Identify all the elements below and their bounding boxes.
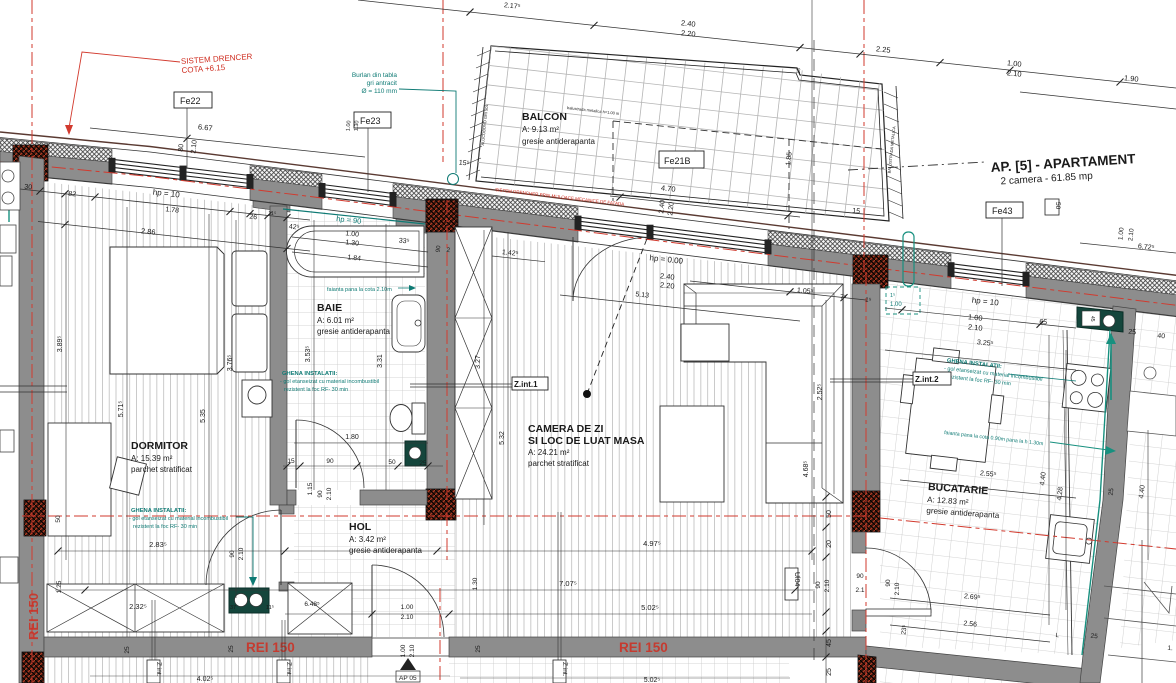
svg-text:20: 20 [826, 540, 833, 548]
svg-text:7.07⁵: 7.07⁵ [559, 579, 577, 588]
svg-text:Z.int.2: Z.int.2 [915, 375, 939, 384]
svg-text:A: 3.42 m²: A: 3.42 m² [349, 535, 386, 544]
svg-text:90: 90 [436, 245, 443, 253]
svg-text:Ul04: Ul04 [793, 572, 800, 587]
svg-text:2.10: 2.10 [894, 582, 901, 595]
svg-text:15: 15 [287, 458, 295, 465]
svg-text:Fe22: Fe22 [180, 96, 201, 106]
svg-text:2.40: 2.40 [681, 18, 696, 28]
svg-text:Fe43: Fe43 [992, 206, 1013, 216]
svg-text:2.10: 2.10 [1127, 228, 1135, 242]
svg-text:15: 15 [852, 208, 861, 216]
svg-text:3.89⁵: 3.89⁵ [57, 336, 64, 353]
svg-text:15: 15 [796, 68, 803, 74]
svg-text:parchet stratificat: parchet stratificat [528, 459, 590, 468]
svg-text:4.97⁵: 4.97⁵ [643, 539, 661, 548]
svg-text:25: 25 [1090, 633, 1098, 641]
svg-text:A: 24.21 m²: A: 24.21 m² [528, 448, 570, 457]
svg-text:Z.int.: Z.int. [285, 662, 292, 677]
svg-text:90: 90 [317, 490, 324, 498]
svg-text:gri antracit: gri antracit [367, 80, 398, 87]
svg-text:2.86: 2.86 [141, 226, 156, 236]
svg-text:HOL: HOL [349, 521, 372, 533]
svg-text:90: 90 [326, 458, 334, 465]
svg-text:A: 6.01 m²: A: 6.01 m² [317, 316, 354, 325]
svg-text:gresie antiderapanta: gresie antiderapanta [317, 327, 390, 336]
svg-text:90: 90 [885, 579, 892, 587]
svg-text:2.25: 2.25 [876, 44, 891, 54]
svg-text:45: 45 [1089, 316, 1095, 322]
svg-text:2.40: 2.40 [658, 200, 666, 214]
svg-text:Fe21B: Fe21B [664, 156, 691, 166]
svg-text:2.20: 2.20 [681, 28, 696, 38]
svg-text:90: 90 [856, 573, 864, 580]
svg-text:11⁵: 11⁵ [268, 210, 277, 218]
svg-text:BALCON: BALCON [522, 111, 567, 123]
svg-text:1.: 1. [1167, 645, 1173, 653]
svg-text:REI 150: REI 150 [26, 593, 41, 640]
svg-text:3.76⁵: 3.76⁵ [227, 355, 234, 372]
svg-text:1.85: 1.85 [785, 152, 793, 166]
svg-text:GHENA INSTALATII:: GHENA INSTALATII: [131, 508, 186, 514]
svg-text:33⁵: 33⁵ [398, 237, 409, 245]
svg-text:23⁵: 23⁵ [900, 624, 908, 635]
svg-text:2.10: 2.10 [326, 487, 333, 500]
svg-text:1.30: 1.30 [353, 120, 360, 131]
svg-text:25: 25 [124, 646, 131, 654]
svg-text:1.15: 1.15 [307, 482, 314, 495]
svg-text:2.10: 2.10 [824, 579, 831, 592]
svg-text:DORMITOR: DORMITOR [131, 440, 188, 452]
svg-text:3.31: 3.31 [377, 354, 384, 368]
svg-text:6.67: 6.67 [198, 122, 213, 132]
svg-text:- gol etanseizat cu material i: - gol etanseizat cu material incombustib… [280, 379, 379, 385]
svg-text:25: 25 [475, 645, 482, 653]
svg-text:3.53⁵: 3.53⁵ [305, 346, 312, 363]
svg-text:2.20: 2.20 [660, 280, 675, 290]
svg-text:15⁵: 15⁵ [458, 159, 469, 167]
svg-text:Z.int.: Z.int. [155, 662, 162, 677]
svg-text:rezistent la foc RF- 30 min: rezistent la foc RF- 30 min [284, 387, 348, 393]
svg-text:1.00: 1.00 [401, 604, 414, 611]
svg-text:82: 82 [68, 191, 77, 199]
svg-text:Ø = 110 mm: Ø = 110 mm [362, 88, 397, 95]
svg-text:A: 9.13 m²: A: 9.13 m² [522, 125, 559, 134]
svg-text:BAIE: BAIE [317, 302, 342, 314]
svg-text:Fe23: Fe23 [360, 116, 381, 126]
svg-text:Z.int.1: Z.int.1 [514, 380, 538, 389]
svg-text:4.68⁵: 4.68⁵ [803, 461, 810, 478]
svg-text:2.10: 2.10 [409, 644, 416, 657]
svg-text:4.40: 4.40 [1039, 472, 1047, 486]
svg-text:5.32: 5.32 [499, 431, 506, 445]
svg-text:1⁵: 1⁵ [865, 297, 872, 305]
svg-text:2.56: 2.56 [963, 620, 977, 628]
svg-text:CAMERA DE ZI: CAMERA DE ZI [528, 423, 604, 435]
svg-text:1.84: 1.84 [347, 254, 361, 262]
svg-text:45: 45 [826, 639, 833, 647]
svg-text:2.10: 2.10 [1007, 68, 1022, 78]
svg-text:5.35: 5.35 [200, 409, 207, 423]
svg-text:4.40: 4.40 [1138, 485, 1146, 499]
svg-text:50: 50 [826, 510, 833, 518]
svg-text:2.52⁵: 2.52⁵ [817, 384, 824, 401]
svg-text:1.00: 1.00 [1007, 58, 1022, 68]
svg-text:65: 65 [1039, 319, 1048, 327]
svg-text:50: 50 [55, 515, 62, 523]
svg-text:2.20: 2.20 [667, 202, 675, 216]
svg-text:4.70: 4.70 [661, 183, 676, 193]
svg-text:1.30: 1.30 [345, 239, 359, 247]
svg-text:parchet stratificat: parchet stratificat [131, 465, 193, 474]
svg-text:Burlan din tabla: Burlan din tabla [352, 72, 398, 79]
svg-text:4.28: 4.28 [1056, 487, 1064, 501]
svg-text:- gol etanseizat cu material i: - gol etanseizat cu material incombustib… [129, 516, 228, 522]
svg-text:30: 30 [24, 184, 33, 192]
svg-text:2.10: 2.10 [190, 140, 198, 154]
svg-text:5.71⁵: 5.71⁵ [118, 401, 125, 418]
svg-text:1.30: 1.30 [472, 577, 479, 590]
svg-text:1.00: 1.00 [345, 230, 359, 238]
svg-text:gresie antiderapanta: gresie antiderapanta [522, 137, 595, 146]
svg-text:2.1: 2.1 [855, 587, 864, 594]
svg-text:42⁵: 42⁵ [288, 223, 299, 231]
svg-text:2.10: 2.10 [401, 614, 414, 621]
svg-text:1.00: 1.00 [400, 644, 407, 657]
svg-text:25: 25 [1108, 488, 1116, 496]
svg-text:7⁵: 7⁵ [840, 294, 847, 302]
svg-text:1.00: 1.00 [1117, 227, 1125, 241]
svg-text:1⁵: 1⁵ [890, 292, 895, 299]
svg-text:1.00: 1.00 [968, 312, 983, 322]
svg-text:25: 25 [826, 668, 833, 676]
svg-text:1.00: 1.00 [345, 120, 352, 131]
svg-text:1.80: 1.80 [345, 434, 359, 441]
svg-text:26: 26 [249, 214, 258, 222]
svg-text:2.32⁵: 2.32⁵ [129, 602, 147, 611]
svg-text:90: 90 [815, 581, 822, 589]
svg-text:A: 15.39 m²: A: 15.39 m² [131, 454, 173, 463]
svg-text:5.02⁵: 5.02⁵ [641, 603, 659, 612]
svg-text:REI 150: REI 150 [619, 640, 668, 655]
svg-text:80: 80 [178, 144, 186, 153]
svg-text:1.25: 1.25 [56, 580, 63, 593]
svg-text:2.10: 2.10 [968, 322, 983, 332]
svg-text:SI LOC DE LUAT MASA: SI LOC DE LUAT MASA [528, 435, 645, 447]
svg-text:50: 50 [388, 459, 396, 466]
svg-text:GHENA INSTALATII:: GHENA INSTALATII: [282, 371, 337, 377]
svg-text:REI 150: REI 150 [246, 640, 295, 655]
svg-text:90: 90 [229, 550, 236, 558]
svg-text:11⁵: 11⁵ [266, 604, 274, 611]
svg-text:gresie antiderapanta: gresie antiderapanta [349, 546, 422, 555]
svg-text:40: 40 [1157, 333, 1166, 341]
svg-text:1.90: 1.90 [1124, 73, 1139, 83]
svg-text:25: 25 [419, 460, 427, 467]
svg-text:3.27: 3.27 [475, 355, 482, 369]
svg-text:Z.int.: Z.int. [561, 662, 568, 677]
svg-text:25: 25 [1128, 329, 1137, 337]
svg-text:1.78: 1.78 [165, 206, 179, 214]
svg-text:2.10: 2.10 [238, 547, 245, 560]
svg-text:2.83⁵: 2.83⁵ [149, 540, 167, 549]
svg-text:25: 25 [228, 645, 235, 653]
svg-text:50: 50 [1054, 202, 1061, 210]
svg-text:1.00: 1.00 [890, 302, 902, 308]
svg-text:rezistent la foc RF- 30 min: rezistent la foc RF- 30 min [133, 524, 197, 530]
svg-text:37: 37 [230, 605, 236, 611]
svg-text:6.48⁵: 6.48⁵ [304, 601, 320, 608]
svg-text:5.13: 5.13 [635, 291, 649, 299]
svg-text:faianta pana la cota 2.10m: faianta pana la cota 2.10m [327, 287, 392, 293]
svg-text:4.02⁵: 4.02⁵ [197, 676, 214, 683]
